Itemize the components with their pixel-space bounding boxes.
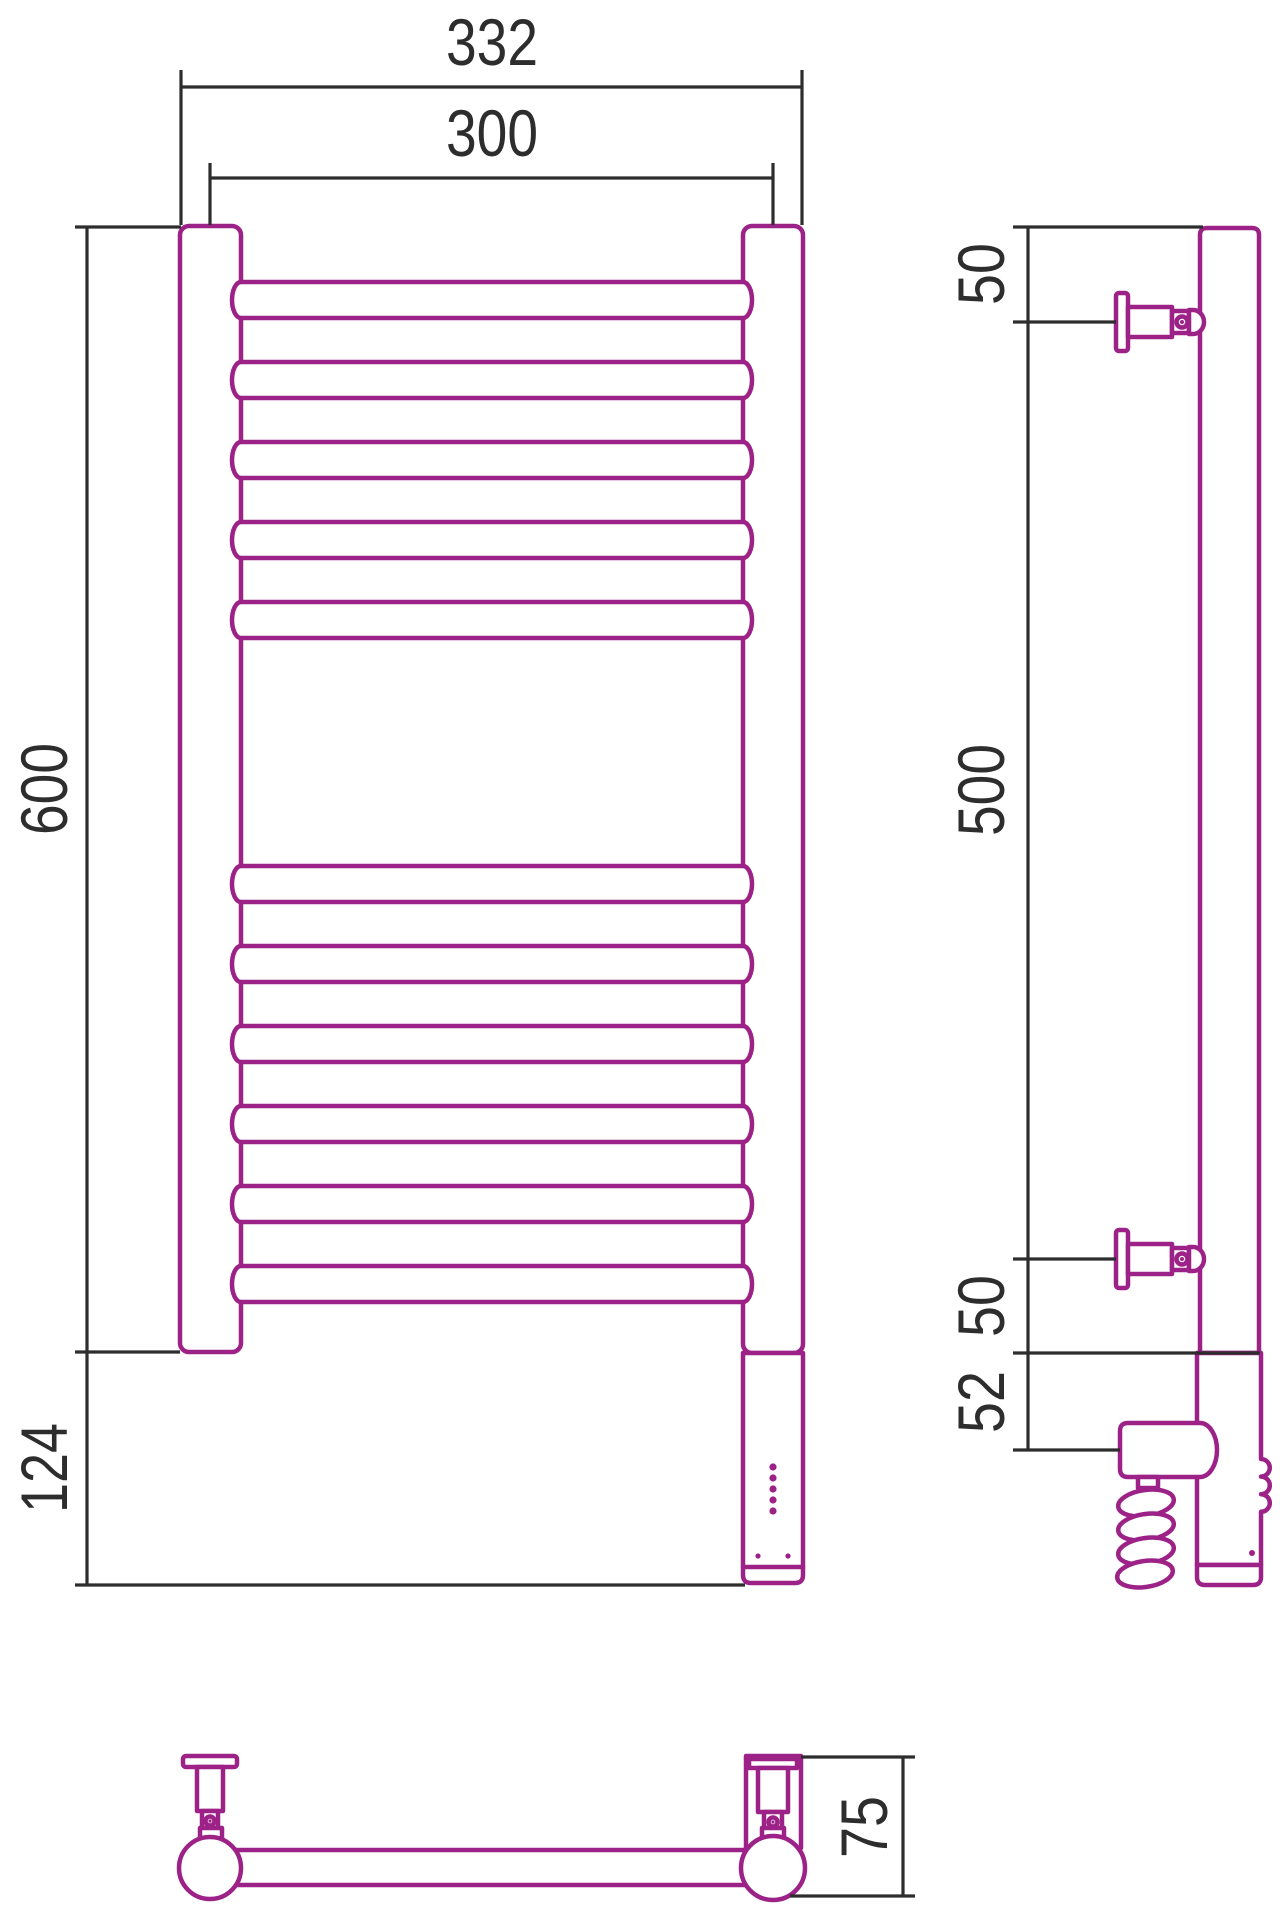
dim-label-plug-offset: 52 <box>944 1371 1018 1433</box>
technical-drawing-canvas: 332 300 600 124 <box>0 0 1285 1920</box>
rung <box>232 1266 752 1302</box>
plan-right-tube-section <box>741 1836 805 1900</box>
dim-label-depth: 75 <box>827 1796 901 1858</box>
wall-bracket-bottom <box>1116 1230 1204 1288</box>
rung <box>232 522 752 558</box>
front-dimensions: 332 300 600 124 <box>7 5 803 1585</box>
rung <box>232 866 752 902</box>
coiled-cable <box>1115 1477 1175 1591</box>
rung <box>232 1026 752 1062</box>
element-dot <box>1249 1550 1255 1556</box>
rung <box>232 602 752 638</box>
rung <box>232 946 752 982</box>
dim-label-top-bracket-offset: 50 <box>944 243 1018 305</box>
wall-bracket-top <box>1116 293 1204 351</box>
towel-rail-drawing: 332 300 600 124 <box>0 0 1285 1920</box>
plan-rail-bar <box>230 1850 750 1885</box>
rung <box>232 362 752 398</box>
rung <box>232 442 752 478</box>
rung <box>232 1106 752 1142</box>
plan-left-tube-section <box>179 1837 241 1899</box>
plan-dimensions: 75 <box>790 1757 915 1896</box>
dim-label-overall-width: 332 <box>446 5 538 79</box>
dim-label-bottom-bracket-offset: 50 <box>944 1275 1018 1337</box>
dim-label-bracket-spacing: 500 <box>944 744 1018 836</box>
front-right-post <box>743 226 803 1353</box>
heating-element-cap <box>1197 1565 1261 1585</box>
plan-bracket-left <box>183 1756 237 1839</box>
front-view <box>180 226 803 1583</box>
side-tube <box>1200 228 1259 1353</box>
side-view <box>1115 228 1269 1591</box>
dim-label-axis-width: 300 <box>446 96 538 170</box>
rung <box>232 1186 752 1222</box>
dim-label-heater-extension: 124 <box>7 1423 81 1513</box>
front-left-post <box>180 226 241 1352</box>
rung <box>232 282 752 318</box>
plan-view <box>179 1756 805 1900</box>
power-plug <box>1120 1423 1217 1477</box>
dim-label-height: 600 <box>7 743 81 835</box>
